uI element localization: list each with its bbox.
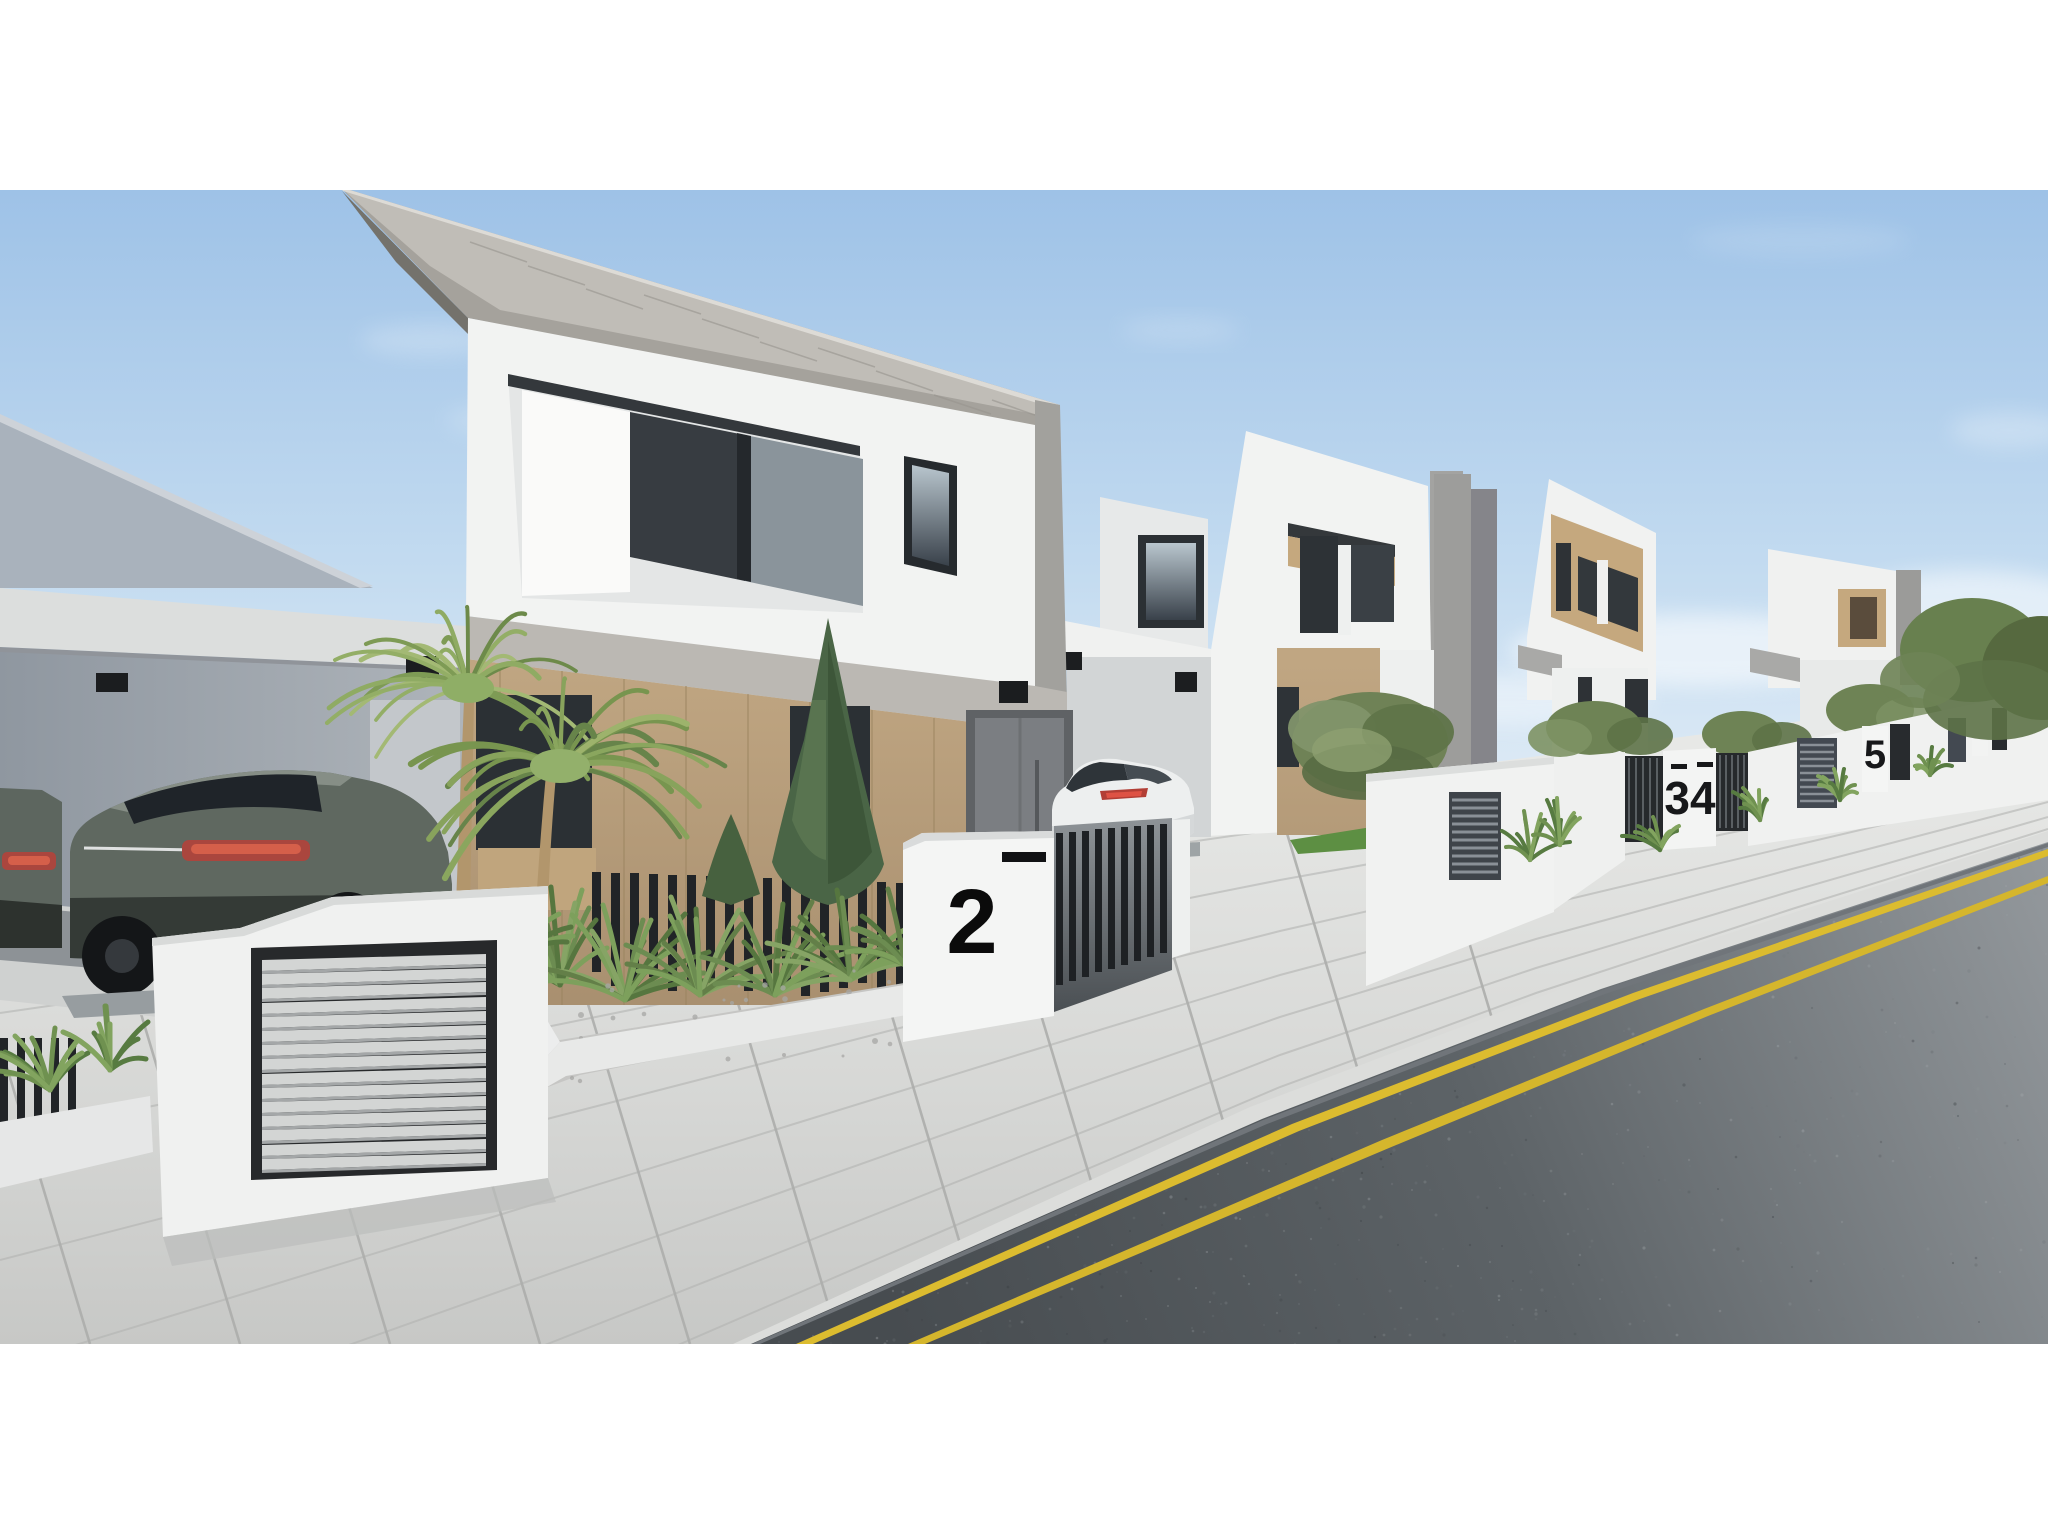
svg-text:5: 5 bbox=[1864, 733, 1886, 777]
svg-text:34: 34 bbox=[1664, 772, 1716, 824]
svg-text:2: 2 bbox=[946, 871, 997, 973]
